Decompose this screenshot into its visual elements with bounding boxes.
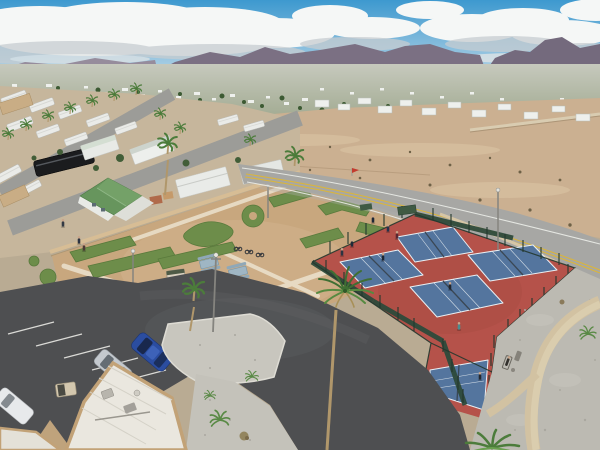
street-lamp-head xyxy=(214,253,218,257)
utility-cart xyxy=(55,382,77,398)
side-table xyxy=(511,368,515,372)
aerial-photo xyxy=(0,0,600,450)
dry-bush xyxy=(560,300,565,305)
roof-vent xyxy=(134,390,140,396)
